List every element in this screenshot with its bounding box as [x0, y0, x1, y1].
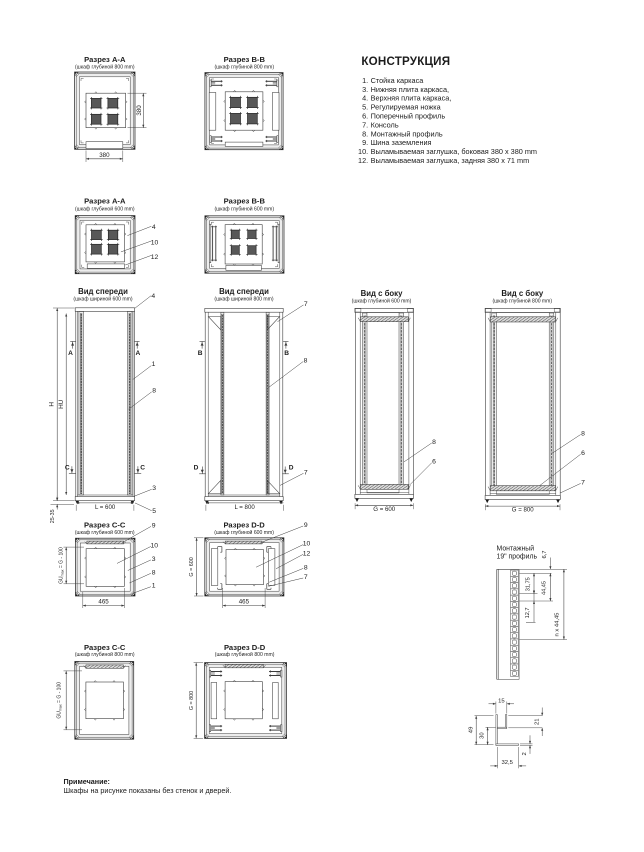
- svg-text:7: 7: [304, 301, 308, 308]
- svg-text:Разрез D-D: Разрез D-D: [223, 520, 265, 529]
- svg-text:G = 800: G = 800: [189, 691, 195, 710]
- svg-text:Примечание:: Примечание:: [64, 777, 110, 786]
- svg-text:G = 600: G = 600: [189, 557, 195, 576]
- svg-text:1.: 1.: [362, 76, 368, 85]
- svg-text:2: 2: [522, 752, 528, 755]
- svg-text:1: 1: [152, 583, 156, 590]
- svg-text:12: 12: [151, 254, 159, 261]
- svg-text:8: 8: [304, 357, 308, 364]
- svg-text:n x 44,45: n x 44,45: [554, 613, 560, 637]
- svg-text:10: 10: [151, 542, 159, 549]
- svg-text:D: D: [289, 465, 294, 472]
- svg-text:D: D: [194, 465, 199, 472]
- svg-text:3: 3: [152, 556, 156, 563]
- svg-text:8: 8: [304, 564, 308, 571]
- svg-text:10: 10: [303, 541, 311, 548]
- svg-text:(шкаф шириной 800 mm): (шкаф шириной 800 mm): [214, 296, 273, 303]
- svg-text:25-35: 25-35: [50, 509, 56, 523]
- svg-text:31,75: 31,75: [525, 577, 531, 591]
- svg-text:10: 10: [151, 239, 159, 246]
- svg-text:Шина заземления: Шина заземления: [371, 138, 432, 147]
- svg-text:Регулируемая ножка: Регулируемая ножка: [371, 103, 442, 112]
- svg-text:5.: 5.: [362, 103, 368, 112]
- svg-text:8: 8: [152, 569, 156, 576]
- svg-text:6.: 6.: [362, 112, 368, 121]
- svg-text:GUmax = G - 100: GUmax = G - 100: [57, 682, 63, 719]
- svg-text:12,7: 12,7: [525, 607, 531, 618]
- svg-text:10.: 10.: [358, 147, 368, 156]
- svg-text:Вид с боку: Вид с боку: [501, 289, 544, 298]
- svg-text:(шкаф глубиной 800 mm): (шкаф глубиной 800 mm): [75, 64, 135, 71]
- svg-text:(шкаф глубиной 800 mm): (шкаф глубиной 800 mm): [215, 651, 275, 658]
- svg-text:HU: HU: [58, 399, 65, 409]
- svg-text:7: 7: [304, 574, 308, 581]
- svg-text:4.: 4.: [362, 94, 368, 103]
- svg-text:Разрез В-В: Разрез В-В: [224, 55, 266, 64]
- svg-text:Поперечный профиль: Поперечный профиль: [371, 112, 446, 121]
- svg-text:КОНСТРУКЦИЯ: КОНСТРУКЦИЯ: [361, 55, 450, 68]
- svg-text:A: A: [68, 350, 73, 357]
- svg-text:(шкаф глубиной 600 mm): (шкаф глубиной 600 mm): [352, 297, 412, 304]
- svg-text:9: 9: [152, 522, 156, 529]
- svg-text:A: A: [136, 350, 141, 357]
- svg-text:Вид спереди: Вид спереди: [219, 287, 269, 296]
- svg-text:Выламываемая заглушка, боковая: Выламываемая заглушка, боковая 380 x 380…: [371, 147, 537, 156]
- svg-text:9.: 9.: [362, 138, 368, 147]
- svg-text:7: 7: [581, 480, 585, 487]
- svg-text:L = 800: L = 800: [234, 504, 255, 511]
- svg-text:30: 30: [480, 732, 486, 739]
- svg-text:19" профиль: 19" профиль: [497, 554, 538, 561]
- svg-text:12: 12: [303, 550, 311, 557]
- svg-text:L = 600: L = 600: [95, 504, 116, 511]
- svg-text:(шкаф глубиной 600 mm): (шкаф глубиной 600 mm): [214, 529, 274, 536]
- svg-text:C: C: [140, 464, 145, 471]
- svg-text:4: 4: [151, 293, 155, 300]
- svg-text:6: 6: [432, 459, 436, 466]
- svg-text:49: 49: [468, 727, 474, 734]
- svg-text:Вид спереди: Вид спереди: [78, 287, 128, 296]
- svg-text:21: 21: [534, 718, 540, 725]
- svg-text:4: 4: [152, 224, 156, 231]
- svg-text:Консоль: Консоль: [371, 120, 399, 129]
- svg-text:Шкафы на рисунке показаны без: Шкафы на рисунке показаны без стенок и д…: [64, 786, 232, 795]
- svg-text:380: 380: [99, 152, 110, 159]
- svg-text:8: 8: [581, 430, 585, 437]
- svg-text:3.: 3.: [362, 85, 368, 94]
- svg-text:(шкаф глубиной 600 mm): (шкаф глубиной 600 mm): [214, 205, 274, 212]
- svg-text:Монтажный профиль: Монтажный профиль: [371, 129, 443, 138]
- svg-text:Разрез А-А: Разрез А-А: [84, 55, 126, 64]
- svg-text:465: 465: [239, 599, 250, 606]
- svg-text:Разрез D-D: Разрез D-D: [224, 643, 266, 652]
- svg-text:(шкаф глубиной 800 mm): (шкаф глубиной 800 mm): [492, 297, 552, 304]
- svg-text:(шкаф глубиной 600 mm): (шкаф глубиной 600 mm): [75, 205, 135, 212]
- svg-text:7.: 7.: [362, 120, 368, 129]
- svg-text:380: 380: [136, 105, 143, 116]
- svg-text:1: 1: [152, 361, 156, 368]
- svg-text:G = 800: G = 800: [512, 507, 534, 514]
- svg-text:465: 465: [98, 599, 109, 606]
- svg-text:(шкаф глубиной 800 mm): (шкаф глубиной 800 mm): [75, 651, 135, 658]
- svg-text:H: H: [49, 402, 56, 407]
- svg-text:5: 5: [152, 508, 156, 515]
- svg-text:(шкаф шириной 600 mm): (шкаф шириной 600 mm): [73, 296, 132, 303]
- svg-text:Нижняя плита каркаса,: Нижняя плита каркаса,: [371, 85, 449, 94]
- svg-text:C: C: [65, 464, 70, 471]
- svg-text:G = 600: G = 600: [373, 506, 395, 513]
- svg-text:Стойка каркаса: Стойка каркаса: [371, 76, 425, 85]
- svg-text:Верхняя плита каркаса,: Верхняя плита каркаса,: [371, 94, 452, 103]
- svg-text:12.: 12.: [358, 156, 368, 165]
- svg-text:Разрез А-А: Разрез А-А: [84, 197, 126, 206]
- svg-text:3: 3: [152, 485, 156, 492]
- svg-text:8: 8: [152, 387, 156, 394]
- svg-text:Вид с боку: Вид с боку: [361, 289, 404, 298]
- svg-text:Монтажный: Монтажный: [497, 544, 535, 552]
- svg-text:6,7: 6,7: [542, 550, 548, 558]
- svg-text:(шкаф глубиной 800 mm): (шкаф глубиной 800 mm): [214, 64, 274, 71]
- svg-text:Разрез С-С: Разрез С-С: [84, 520, 126, 529]
- svg-text:Разрез С-С: Разрез С-С: [84, 643, 126, 652]
- svg-text:7: 7: [304, 469, 308, 476]
- svg-text:B: B: [198, 350, 203, 357]
- svg-text:B: B: [284, 350, 289, 357]
- svg-text:Разрез В-В: Разрез В-В: [224, 197, 266, 206]
- svg-text:9: 9: [304, 522, 308, 529]
- svg-text:(шкаф глубиной 600 mm): (шкаф глубиной 600 mm): [75, 529, 135, 536]
- svg-text:44,45: 44,45: [541, 581, 547, 595]
- svg-text:8.: 8.: [362, 129, 368, 138]
- svg-text:GUmax = G - 100: GUmax = G - 100: [59, 547, 65, 584]
- svg-text:Выламываемая заглушка, задняя: Выламываемая заглушка, задняя 380 x 71 m…: [371, 156, 530, 165]
- svg-text:8: 8: [432, 439, 436, 446]
- svg-text:15: 15: [498, 698, 505, 704]
- svg-text:6: 6: [581, 450, 585, 457]
- svg-text:32,5: 32,5: [501, 760, 513, 766]
